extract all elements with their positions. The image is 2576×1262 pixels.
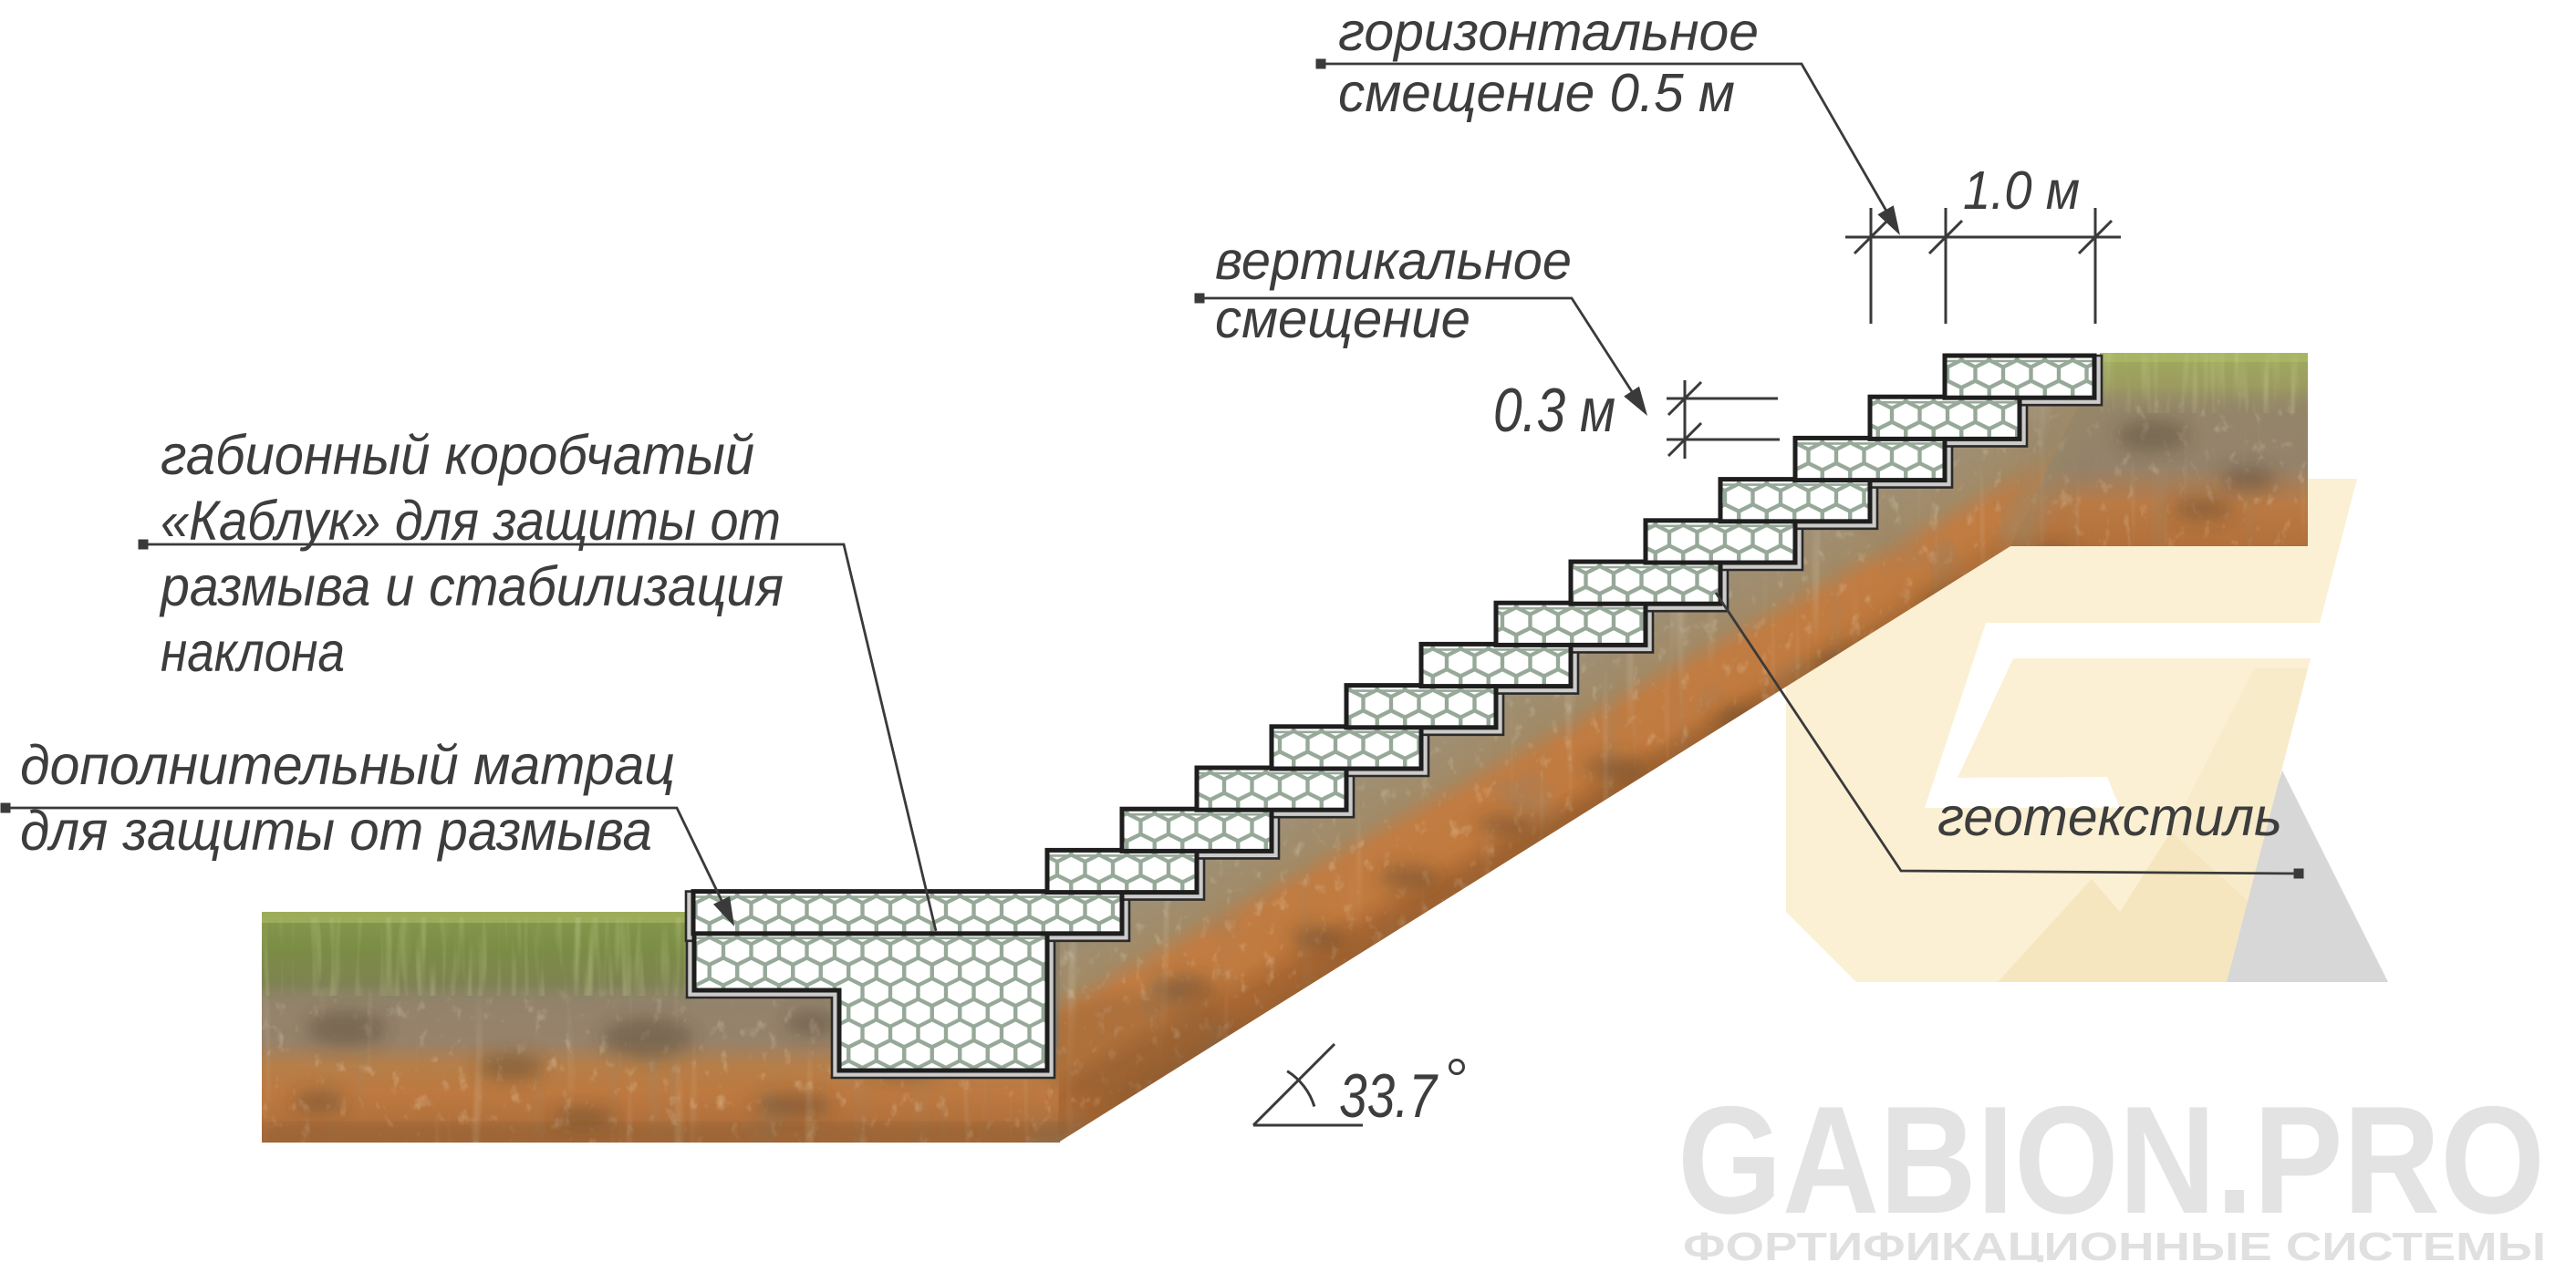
svg-text:смещение 0.5 м: смещение 0.5 м xyxy=(1338,63,1735,123)
svg-text:GABION.PRO: GABION.PRO xyxy=(1678,1074,2545,1246)
svg-text:1.0 м: 1.0 м xyxy=(1963,160,2080,221)
svg-text:наклона: наклона xyxy=(161,621,345,683)
svg-text:для защиты от размыва: для защиты от размыва xyxy=(20,800,652,862)
svg-text:33.7: 33.7 xyxy=(1339,1061,1439,1131)
svg-text:вертикальное: вертикальное xyxy=(1215,231,1572,291)
svg-text:смещение: смещение xyxy=(1215,289,1470,349)
svg-text:горизонтальное: горизонтальное xyxy=(1338,2,1759,62)
svg-text:размыва и стабилизация: размыва и стабилизация xyxy=(159,555,784,617)
svg-text:дополнительный матрац: дополнительный матрац xyxy=(20,734,675,796)
svg-text:«Каблук» для защиты от: «Каблук» для защиты от xyxy=(161,490,781,552)
svg-text:габионный коробчатый: габионный коробчатый xyxy=(161,424,754,486)
svg-text:ФОРТИФИКАЦИОННЫЕ СИСТЕМЫ: ФОРТИФИКАЦИОННЫЕ СИСТЕМЫ xyxy=(1683,1225,2546,1262)
svg-text:геотекстиль: геотекстиль xyxy=(1937,787,2282,847)
svg-text:0.3 м: 0.3 м xyxy=(1493,376,1615,445)
